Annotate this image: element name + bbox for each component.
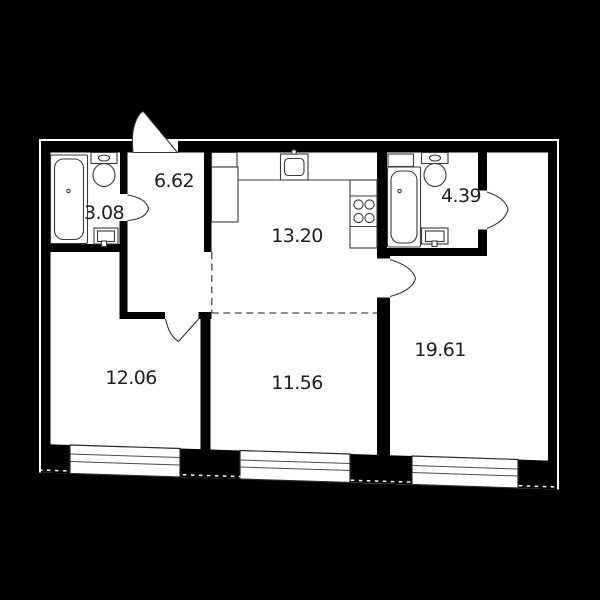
pier — [41, 444, 70, 474]
stove — [350, 180, 377, 248]
toilet — [422, 153, 449, 187]
wall-right — [548, 141, 557, 487]
room-label-bathroom-1: 3.08 — [84, 202, 124, 224]
wall-bath1-right-upper — [120, 152, 128, 194]
wall-hall-kitchen — [204, 152, 212, 252]
wall-bedroom1-top-a — [120, 312, 166, 319]
washbasin — [94, 228, 118, 247]
wall-bath2-bottom — [377, 248, 487, 256]
washbasin — [422, 228, 449, 247]
wall-stub-bath2 — [377, 248, 390, 259]
wall-bath2-right-lower — [478, 230, 487, 257]
room-label-bedroom-2: 19.61 — [414, 339, 465, 361]
wall-bath1-bottom — [41, 244, 128, 252]
toilet — [91, 153, 117, 187]
room-label-hallway: 6.62 — [154, 170, 194, 192]
room-label-bathroom-2: 4.39 — [441, 185, 481, 207]
wall-kitchen-bath2 — [377, 152, 387, 248]
apartment-floor — [39, 139, 559, 490]
wall-living-bedroom2 — [377, 298, 390, 457]
kitchen-sink — [281, 150, 309, 180]
cabinet — [212, 153, 238, 168]
room-label-kitchen: 13.20 — [271, 225, 322, 247]
wall-left — [41, 141, 51, 445]
fridge — [212, 167, 239, 222]
wall-bath1-right-lower — [120, 221, 128, 319]
room-label-living-room: 11.56 — [271, 372, 322, 394]
wall-top-right — [178, 141, 557, 153]
shelf — [388, 154, 414, 167]
bathtub — [388, 167, 421, 247]
wall-top-left — [41, 141, 133, 153]
wall-bedroom1-living — [201, 312, 211, 459]
floor-plan: 3.08 6.62 13.20 4.39 12.06 11.56 19.61 — [0, 0, 600, 600]
room-label-bedroom-1: 12.06 — [105, 367, 156, 389]
window-bedroom-1 — [70, 445, 180, 477]
bathtub — [51, 155, 88, 244]
